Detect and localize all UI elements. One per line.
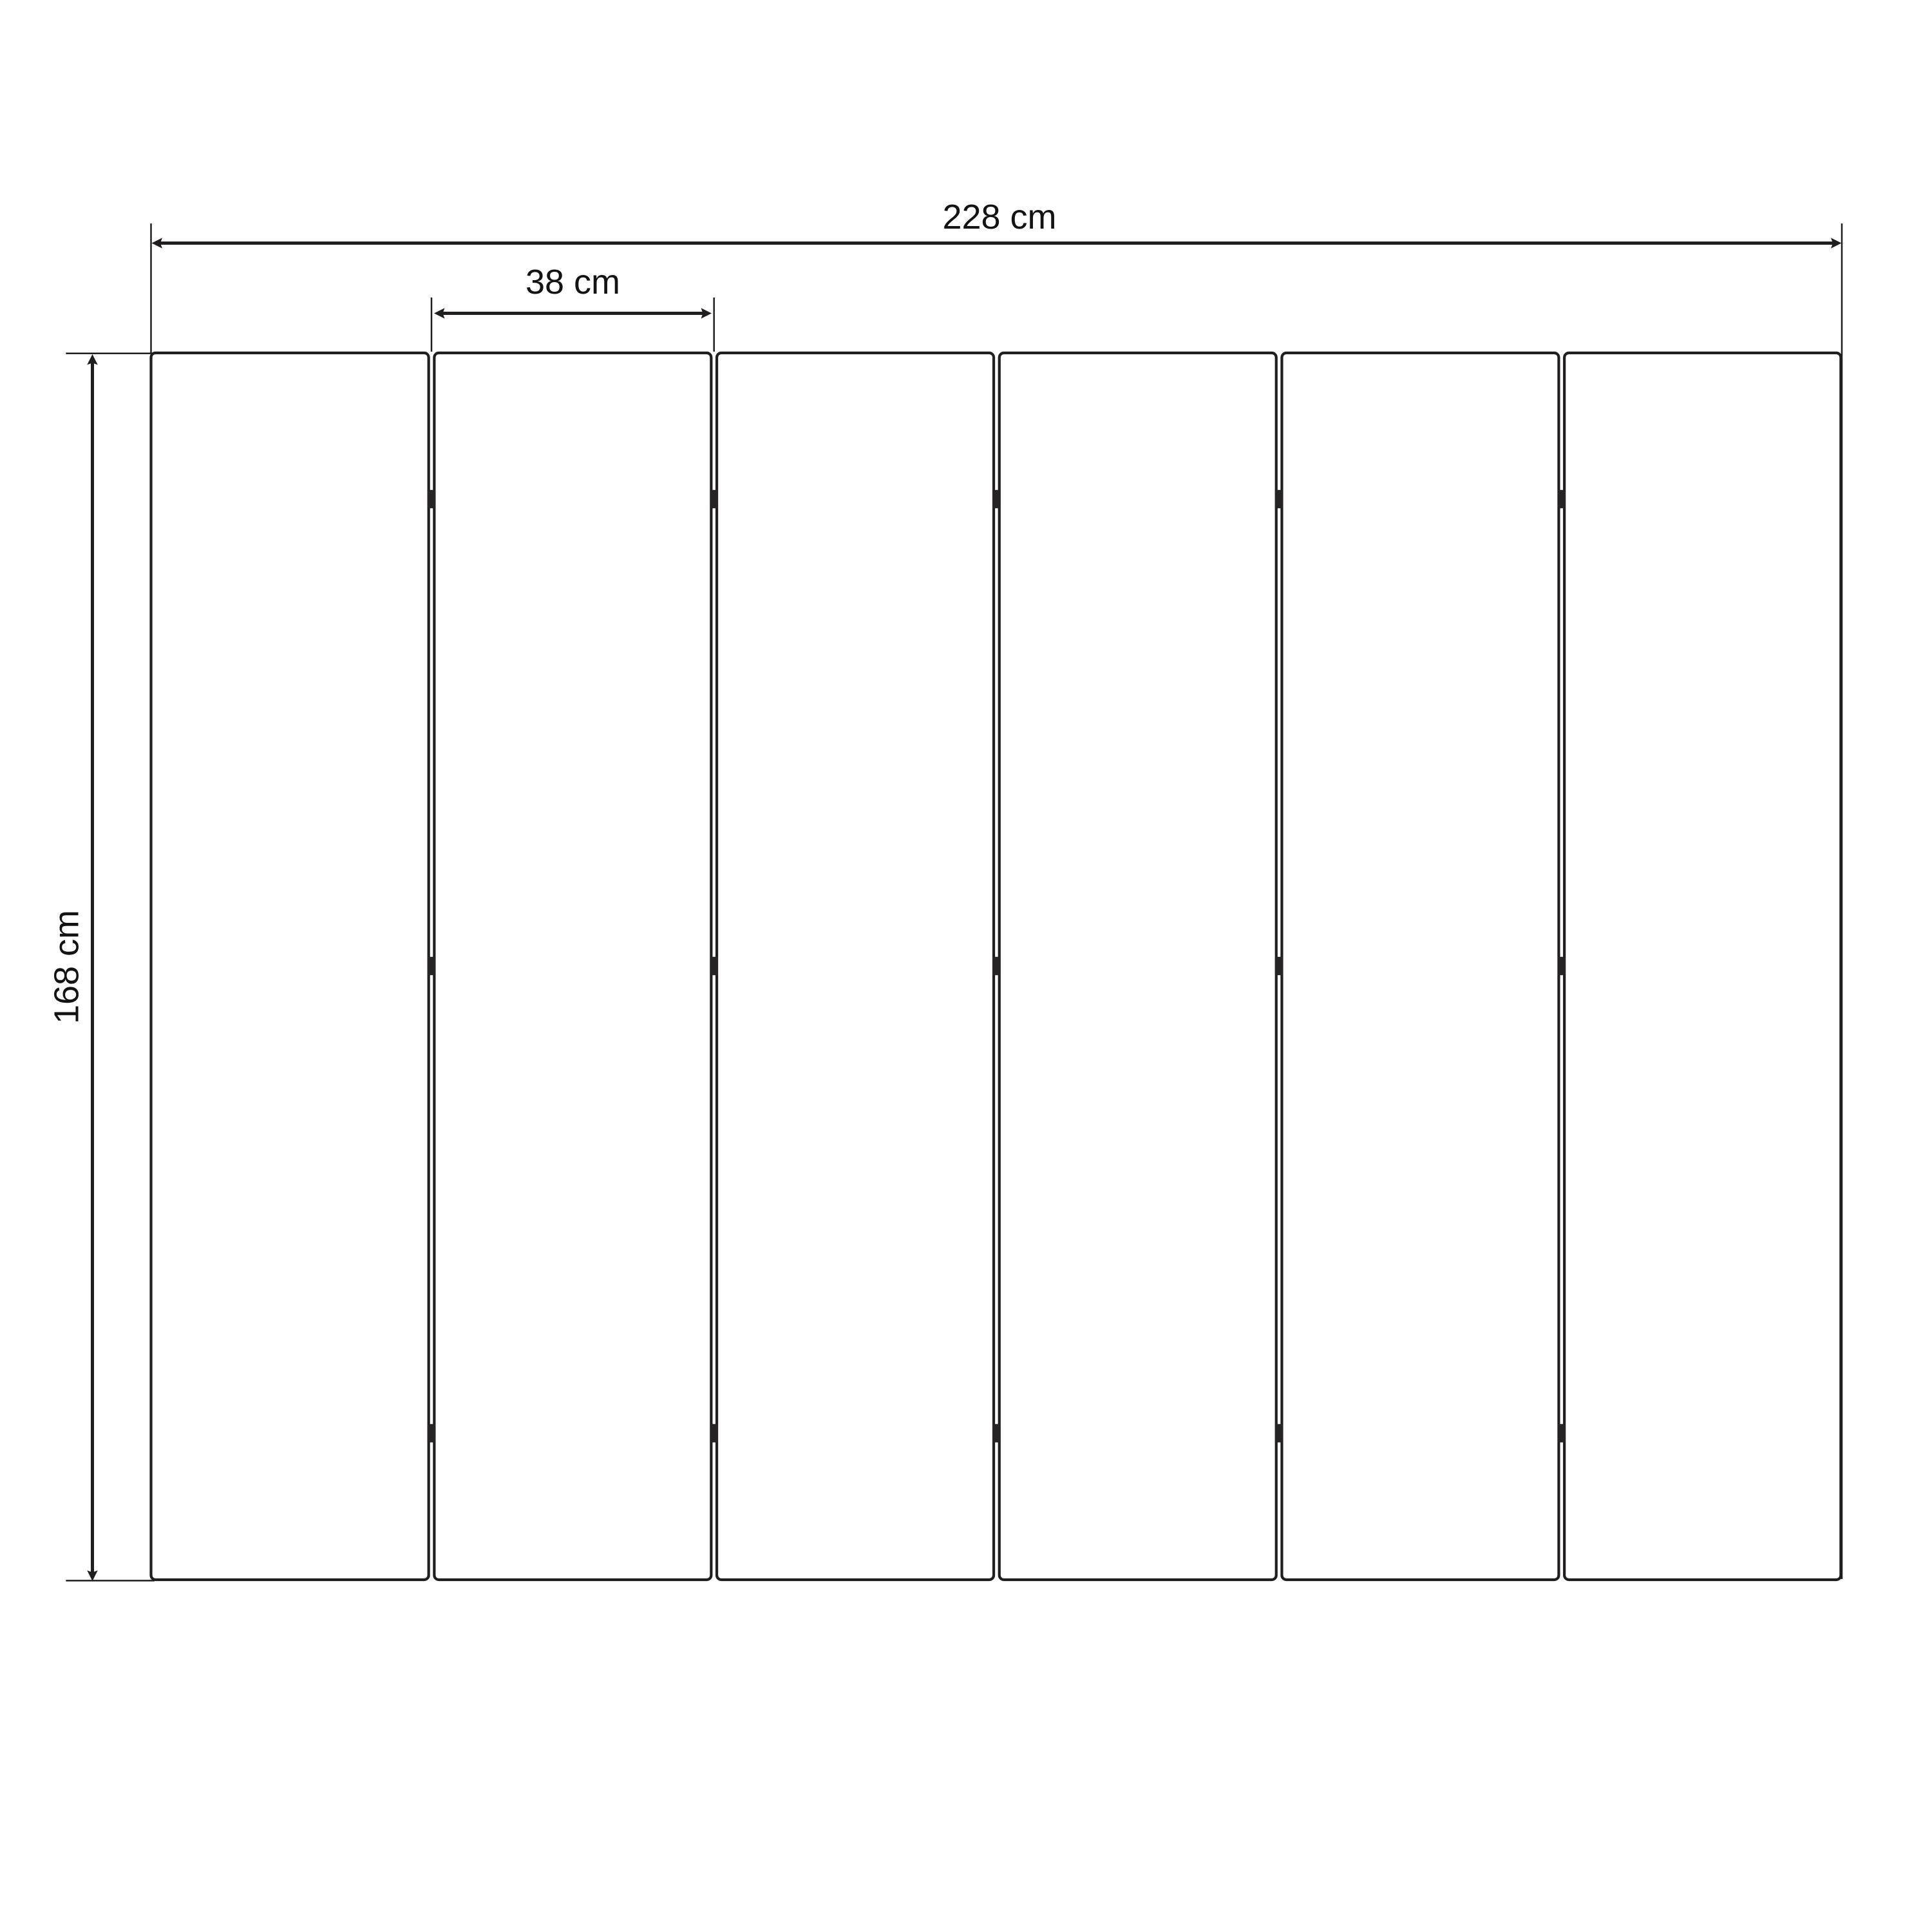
- svg-text:38 cm: 38 cm: [526, 263, 620, 301]
- svg-text:228 cm: 228 cm: [942, 198, 1056, 236]
- svg-text:168 cm: 168 cm: [48, 910, 86, 1024]
